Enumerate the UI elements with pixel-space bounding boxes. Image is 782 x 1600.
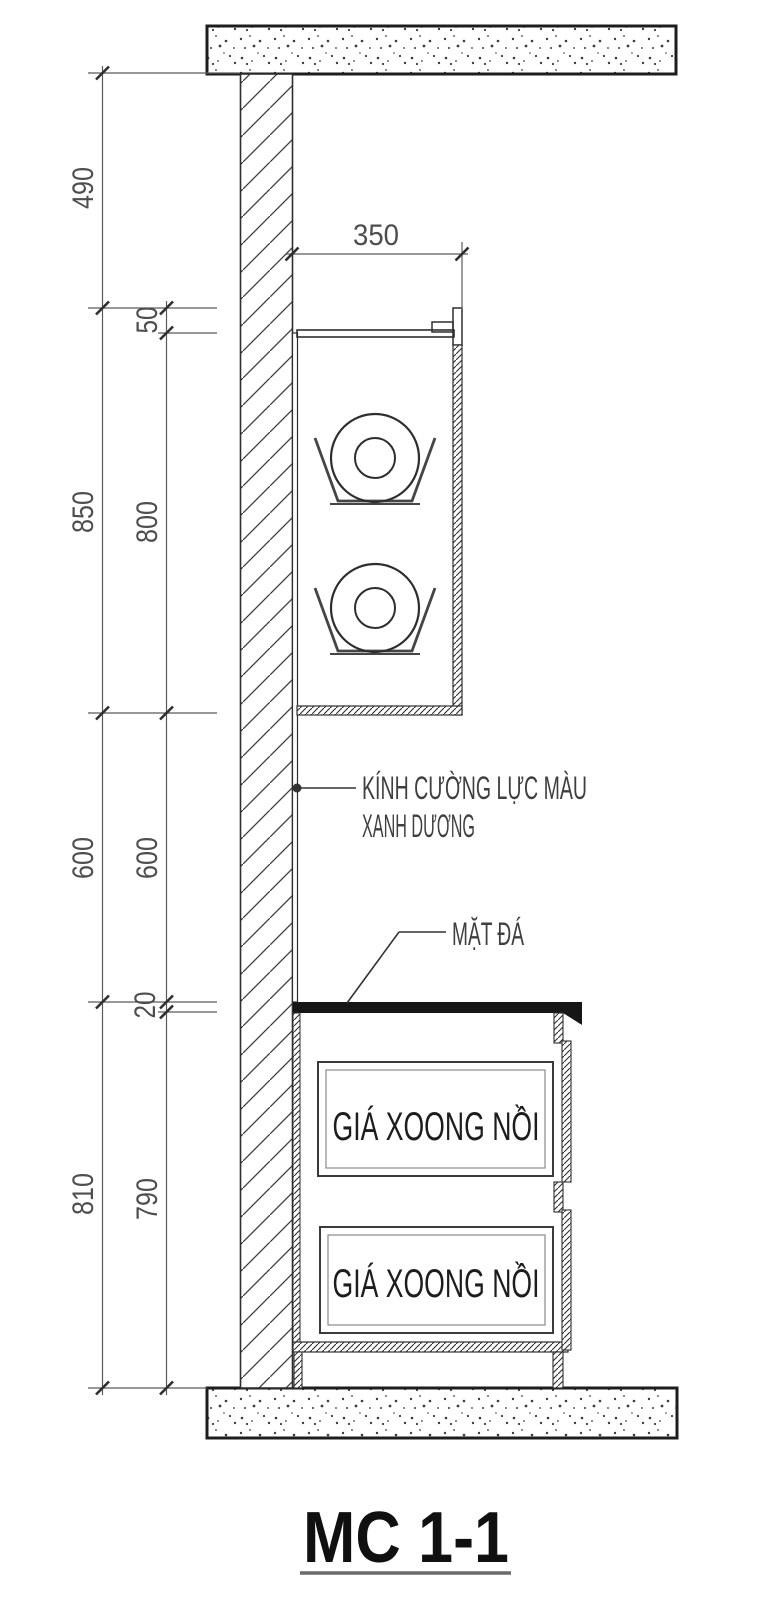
dim-label-490: 490	[67, 167, 100, 209]
dim-label-600-inner: 600	[131, 837, 164, 879]
countertop-slab	[293, 1002, 582, 1013]
lower-cabinet-mid-rail	[554, 1182, 563, 1212]
dim-label-790: 790	[131, 1178, 164, 1220]
upper-cabinet-top-bracket	[453, 308, 462, 345]
section-title: MC 1-1	[300, 1498, 511, 1578]
upper-cabinet	[297, 308, 462, 715]
wall-section	[241, 74, 293, 1388]
drawing-svg: GIÁ XOONG NỒI GIÁ XOONG NỒI KÍNH CƯỜNG L…	[0, 0, 782, 1600]
section-title-text: MC 1-1	[303, 1498, 509, 1578]
lower-cabinet: GIÁ XOONG NỒI GIÁ XOONG NỒI	[293, 1013, 571, 1388]
stone-note-leader-diagonal	[347, 932, 399, 1003]
upper-cabinet-side-panel	[453, 345, 462, 715]
dimension-system-left: 490 850 600 810 50 800 600 20 790	[67, 66, 240, 1395]
toe-kick-left	[294, 1352, 302, 1388]
glass-panel	[293, 333, 298, 1002]
glass-note-line1: KÍNH CƯỜNG LỰC MÀU	[362, 770, 587, 806]
drawer-1-label: GIÁ XOONG NỒI	[333, 1103, 540, 1149]
dim-label-800: 800	[131, 501, 164, 543]
section-drawing: GIÁ XOONG NỒI GIÁ XOONG NỒI KÍNH CƯỜNG L…	[0, 0, 782, 1600]
glass-note-line2: XANH DƯƠNG	[362, 808, 475, 844]
plate-circle-2	[331, 564, 419, 652]
plate-circle-1-inner	[355, 438, 395, 478]
plate-circle-1	[331, 414, 419, 502]
drawer-1-front	[562, 1041, 571, 1182]
drawer-2-label: GIÁ XOONG NỒI	[333, 1260, 540, 1306]
ceiling-slab	[207, 26, 676, 74]
stone-note: MẶT ĐÁ	[347, 916, 524, 1003]
dim-label-50: 50	[131, 307, 164, 334]
lower-cabinet-back-panel	[293, 1013, 300, 1343]
dim-label-350: 350	[353, 219, 399, 252]
leader-dot	[293, 784, 302, 793]
plate-circle-2-inner	[355, 588, 395, 628]
drawer-2-front	[562, 1210, 571, 1350]
dimension-350: 350	[286, 219, 469, 310]
dim-label-20: 20	[129, 992, 162, 1019]
upper-cabinet-bottom-panel	[297, 706, 462, 715]
lower-cabinet-top-rail	[554, 1013, 563, 1043]
upper-cabinet-top-panel	[297, 330, 454, 337]
toe-kick-right	[553, 1352, 563, 1388]
stone-note-label: MẶT ĐÁ	[452, 916, 524, 952]
dim-label-850: 850	[67, 491, 100, 533]
glass-note: KÍNH CƯỜNG LỰC MÀU XANH DƯƠNG	[293, 770, 588, 844]
lower-cabinet-bottom-panel	[293, 1342, 568, 1352]
dim-label-600-outer: 600	[67, 837, 100, 879]
countertop-edge-lip	[563, 1013, 582, 1025]
floor-slab	[207, 1388, 677, 1438]
countertop	[293, 1002, 582, 1025]
dim-label-810: 810	[67, 1173, 100, 1215]
